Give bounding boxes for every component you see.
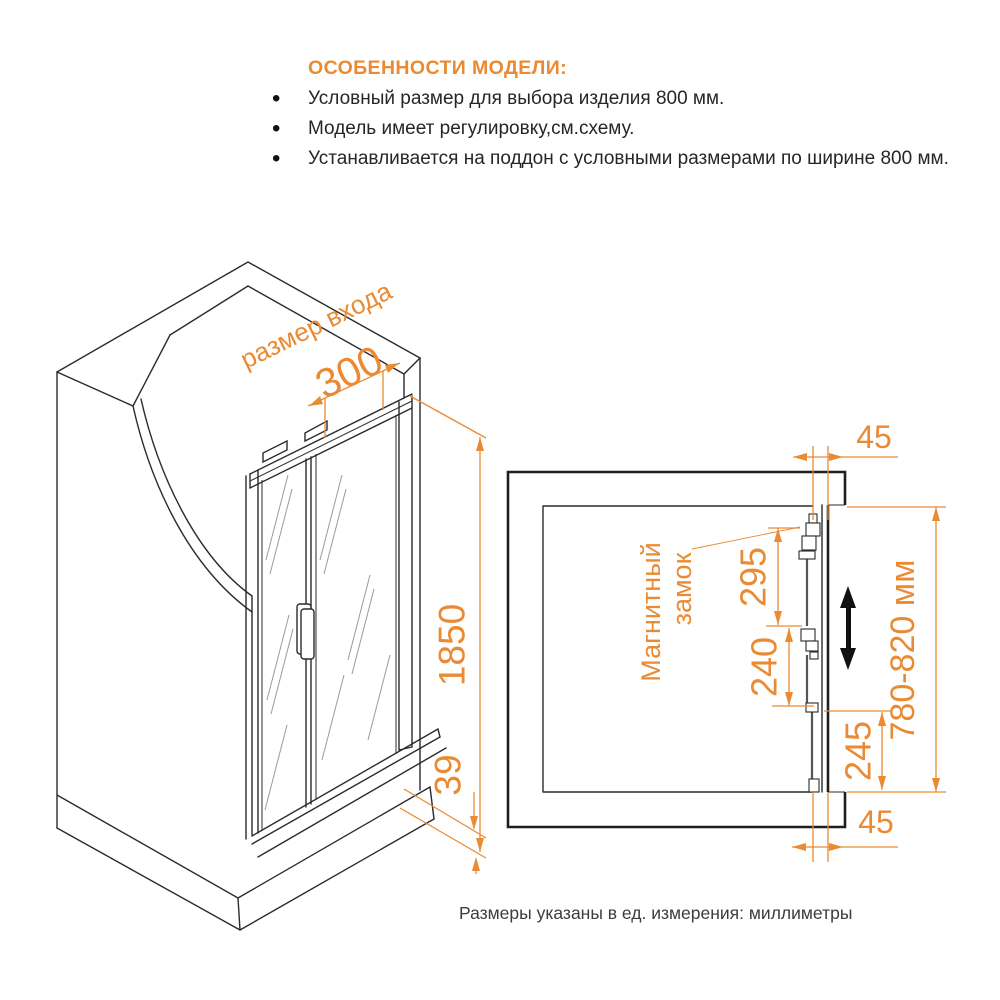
shower-door-spec-sheet: ОСОБЕННОСТИ МОДЕЛИ: Условный размер для …: [0, 0, 1000, 1000]
dim-lock-bottom: 245: [838, 721, 879, 781]
roller-bracket: [263, 441, 287, 462]
dim-lock-middle: 240: [744, 637, 785, 697]
iso-dimensions: размер входа 300 1850 39: [235, 275, 486, 874]
magnetic-lock-label: Магнитный: [636, 542, 666, 681]
dim-height: 1850: [432, 604, 473, 686]
technical-drawing: размер входа 300 1850 39: [0, 0, 1000, 1000]
top-view: 45 45 780-820 мм: [508, 419, 946, 862]
dim-top-offset: 45: [856, 419, 892, 455]
walls-plan: [508, 472, 845, 827]
dim-threshold: 39: [428, 754, 469, 795]
isometric-view: размер входа 300 1850 39: [57, 262, 486, 930]
plan-dimensions: 45 45 780-820 мм: [636, 419, 946, 862]
dim-entrance: 300: [308, 336, 390, 407]
dim-lock-top: 295: [733, 547, 774, 607]
magnetic-lock-label: замок: [667, 552, 697, 625]
adjustment-arrow: [840, 586, 856, 670]
units-note: Размеры указаны в ед. измерения: миллиме…: [459, 903, 852, 924]
glass-hatching: [265, 475, 390, 810]
door-handle: [297, 604, 314, 659]
magnetic-lock-parts: [799, 514, 820, 792]
dim-bottom-offset: 45: [858, 804, 894, 840]
sliding-door: [246, 394, 446, 857]
dim-width-range: 780-820 мм: [884, 560, 922, 741]
door-profile-plan: [799, 505, 828, 792]
